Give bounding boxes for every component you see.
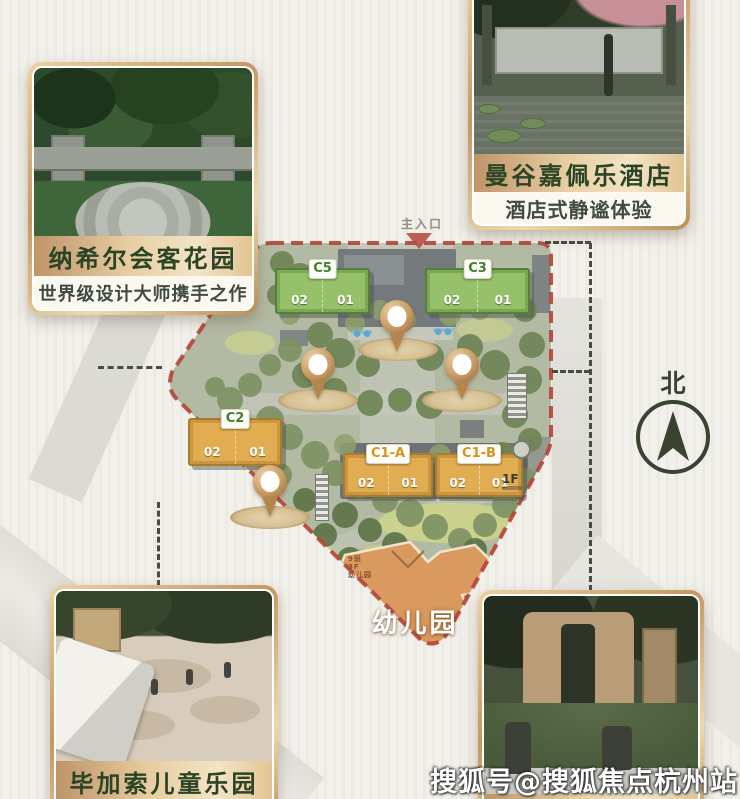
- parcel-dash-left-vertical: [157, 502, 160, 586]
- kids-figure: [151, 679, 158, 695]
- building-c1a[interactable]: C1-A 02 01: [343, 453, 433, 497]
- map-pin[interactable]: [253, 465, 287, 521]
- north-arrow-icon: [636, 400, 710, 474]
- hotel-photo: [474, 0, 684, 154]
- kindergarten-label: 幼儿园: [340, 603, 490, 640]
- parcel-dash-left-horizontal: [98, 366, 162, 369]
- card-garden-title: 纳希尔会客花园: [34, 236, 252, 276]
- lily-pads: [478, 104, 500, 114]
- building-c2-badge: C2: [221, 409, 250, 429]
- card-hotel-title: 曼谷嘉佩乐酒店: [474, 154, 684, 192]
- card-kids[interactable]: 毕加索儿童乐园: [50, 585, 278, 799]
- floor-label-1f: 1F: [502, 473, 522, 490]
- hotel-column: [482, 5, 492, 85]
- main-entrance-label: 主入口: [382, 215, 462, 232]
- parcel-dash-right-vertical: [589, 243, 592, 591]
- page: 主入口 C5 02 01 C3 02 01 C2 02 01 C1-A 02 0…: [0, 0, 740, 799]
- stairs-icon: [315, 474, 329, 521]
- map-pin[interactable]: [445, 348, 479, 404]
- watermark: 搜狐号@搜狐焦点杭州站: [430, 760, 738, 799]
- hotel-pond: [474, 96, 684, 154]
- building-c1a-badge: C1-A: [366, 444, 410, 464]
- parcel-dash-right-connector: [552, 370, 590, 373]
- garden-stone-bridge: [34, 147, 252, 169]
- hotel-figure: [604, 34, 613, 96]
- kids-slide: [56, 636, 157, 761]
- bike-icon: [433, 323, 453, 335]
- building-c2[interactable]: C2 02 01: [188, 418, 282, 466]
- card-hotel[interactable]: 曼谷嘉佩乐酒店 酒店式静谧体验: [468, 0, 690, 230]
- building-c1b-badge: C1-B: [457, 444, 501, 464]
- building-c5[interactable]: C5 02 01: [275, 268, 370, 314]
- hotel-column: [666, 5, 676, 85]
- bike-icon: [352, 325, 372, 337]
- roland-door: [561, 624, 595, 711]
- service-circle-icon: [512, 440, 531, 459]
- card-garden-subtitle: 世界级设计大师携手之作: [34, 276, 252, 309]
- card-garden[interactable]: 纳希尔会客花园 世界级设计大师携手之作: [28, 62, 258, 315]
- hotel-pavilion: [495, 27, 663, 74]
- lily-pads: [487, 129, 521, 143]
- main-entrance-arrow-icon: [406, 233, 432, 249]
- kids-figure: [224, 662, 231, 678]
- building-c3-badge: C3: [463, 259, 492, 279]
- kids-photo: [56, 591, 272, 761]
- parcel-dash-top-right: [545, 241, 591, 244]
- card-hotel-subtitle: 酒店式静谧体验: [474, 192, 684, 224]
- map-pin[interactable]: [380, 300, 414, 356]
- card-kids-title: 毕加索儿童乐园: [56, 761, 272, 799]
- kids-figure: [186, 669, 193, 685]
- small-text-smudge: [502, 486, 522, 490]
- lily-pads: [520, 118, 546, 129]
- building-c3[interactable]: C3 02 01: [425, 268, 530, 314]
- building-c5-badge: C5: [308, 259, 337, 279]
- kids-sand-patch: [190, 696, 260, 724]
- map-pin[interactable]: [301, 348, 335, 404]
- roland-side-structure: [642, 628, 676, 711]
- kindergarten-annotation: 9班 3F 幼儿园: [348, 555, 372, 579]
- garden-photo: [34, 68, 252, 236]
- stairs-icon: [507, 373, 527, 419]
- north-label: 北: [640, 364, 706, 400]
